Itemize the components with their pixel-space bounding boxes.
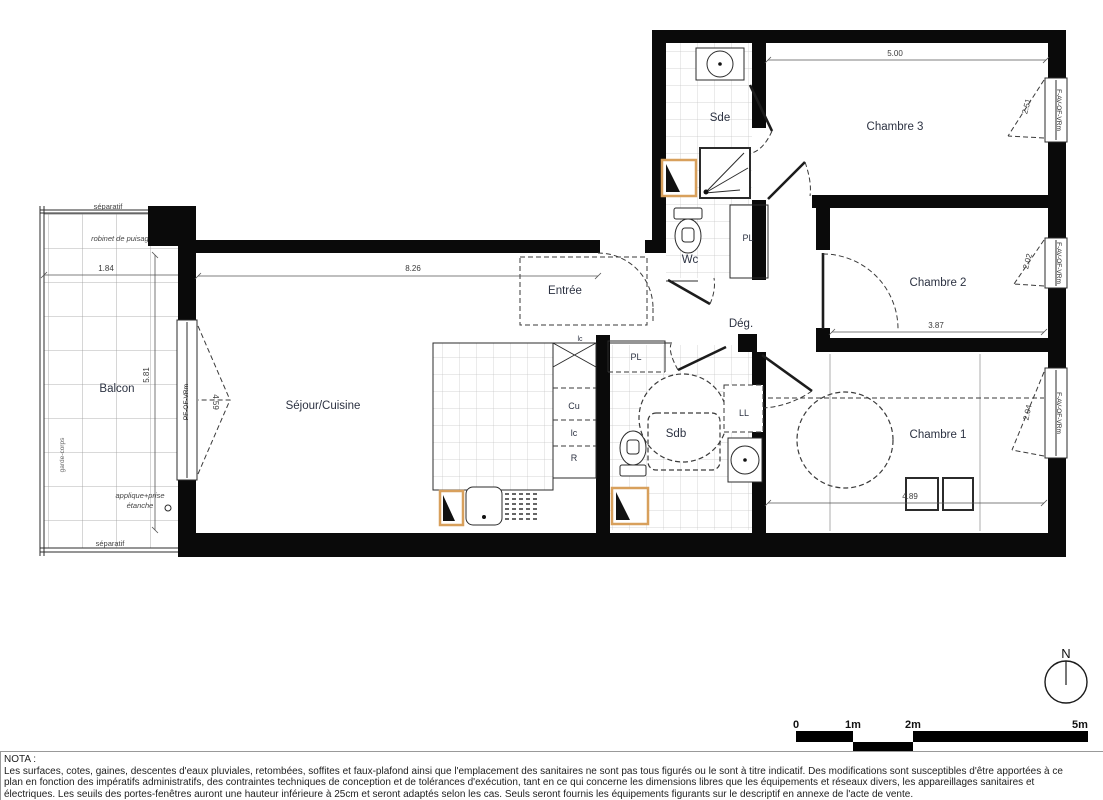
svg-text:4.59: 4.59 (211, 394, 220, 410)
washing-machine-box: LL (724, 385, 763, 432)
separatif-top-label: séparatif (94, 202, 124, 211)
room-chambre3: Chambre 3 5.00 (765, 49, 1049, 133)
window-chambre2: F-AV-OF-VRm 2.02 (1014, 238, 1067, 288)
room-label-sdb: Sdb (666, 428, 686, 440)
bed-circle (797, 392, 893, 488)
appliance-label-lc: lc (571, 428, 578, 438)
washbasin-icon-sdb (728, 438, 762, 482)
room-label-balcon: Balcon (99, 383, 134, 395)
scale-label-0: 0 (793, 719, 799, 731)
svg-text:5.00: 5.00 (887, 49, 903, 58)
dim-chambre2-width: 3.87 (829, 321, 1047, 335)
room-label-sejour: Séjour/Cuisine (286, 400, 361, 412)
room-chambre2: Chambre 2 3.87 (829, 277, 1047, 335)
svg-text:4.89: 4.89 (902, 492, 918, 501)
scale-label-5m: 5m (1072, 719, 1088, 731)
nota-block: NOTA : Les surfaces, cotes, gaines, desc… (0, 751, 1103, 800)
svg-text:2.02: 2.02 (1021, 252, 1034, 270)
room-label-entree: Entrée (548, 285, 582, 297)
room-label-chambre1: Chambre 1 (910, 429, 967, 441)
entree-zone: Entrée (520, 253, 653, 325)
front-door-swing (598, 253, 653, 324)
room-chambre1: Chambre 1 4.89 (765, 354, 1047, 531)
svg-text:8.26: 8.26 (405, 264, 421, 273)
applique-label-1: applique+prise (116, 491, 165, 500)
room-label-chambre3: Chambre 3 (867, 121, 924, 133)
window-label-sejour: PF-OF-VRm (183, 384, 190, 420)
dim-sejour-width: 8.26 (195, 264, 601, 279)
room-label-wc: Wc (682, 254, 699, 266)
window-label-chambre1: F-AV-OF-VRm (1055, 392, 1062, 434)
kitchen-appliance-column: lc Cu lc R (553, 336, 596, 478)
garde-corps-label: garde-corps (59, 437, 66, 472)
floor-plan: séparatif robinet de puisage 1.84 Balcon… (0, 0, 1103, 751)
scale-bar: 0 1m 2m 5m (793, 719, 1088, 751)
window-chambre1: F-AV-OF-VRm 2.04 (1012, 368, 1067, 458)
nota-line-2: plan en fonction des impératifs administ… (4, 777, 1103, 789)
appliance-label-r: R (571, 453, 578, 463)
balcony-door-highlight-sejour (440, 491, 463, 525)
door-leaf-wc (668, 280, 710, 304)
kitchen-sink-icon (466, 487, 502, 525)
scale-label-2m: 2m (905, 719, 921, 731)
room-label-chambre2: Chambre 2 (910, 277, 967, 289)
scale-label-1m: 1m (845, 719, 861, 731)
window-label-chambre3: F-AV-OF-VRm (1055, 89, 1062, 131)
washbasin-icon (696, 48, 744, 80)
nota-line-1: Les surfaces, cotes, gaines, descentes d… (4, 766, 1103, 778)
north-compass-icon: N (1045, 646, 1087, 703)
closet-label-hall: PL (742, 233, 753, 243)
svg-text:3.87: 3.87 (928, 321, 944, 330)
balcony: séparatif robinet de puisage 1.84 Balcon… (40, 202, 186, 556)
svg-text:1.84: 1.84 (98, 264, 114, 273)
nightstand (943, 478, 973, 510)
closet-label-sejour: PL (630, 352, 641, 362)
svg-text:5.81: 5.81 (142, 367, 151, 383)
duct-highlight-sde (662, 160, 696, 196)
kitchen-floor (433, 343, 553, 490)
north-label: N (1061, 646, 1070, 661)
room-label-sde: Sde (710, 112, 730, 124)
svg-text:2.51: 2.51 (1020, 97, 1033, 115)
window-label-chambre2: F-AV-OF-VRm (1055, 242, 1062, 284)
window-sejour: PF-OF-VRm 4.59 (177, 320, 230, 480)
door-leaf-chambre1 (762, 355, 812, 391)
appliance-label-lc-top: lc (577, 336, 583, 343)
svg-text:2.04: 2.04 (1022, 403, 1034, 421)
shower-tray-icon (700, 148, 750, 198)
nota-line-3: électriques. Les seuils des portes-fenêt… (4, 789, 1103, 800)
toilet-icon-sdb (620, 431, 646, 476)
duct-highlight-sdb (612, 488, 648, 524)
dish-drainer-icon (505, 494, 537, 519)
robinet-label: robinet de puisage (91, 234, 153, 243)
room-label-deg: Dég. (729, 318, 753, 330)
applique-label-2: étanche (127, 501, 154, 510)
window-chambre3: F-AV-OF-VRm 2.51 (1008, 78, 1067, 142)
appliance-label-cu: Cu (568, 401, 580, 411)
door-leaf-chambre3 (768, 162, 805, 199)
appliance-label-ll: LL (739, 408, 749, 418)
toilet-icon-wc (674, 208, 702, 253)
bathtub-circle (639, 374, 727, 462)
separatif-bottom-label: séparatif (96, 539, 126, 548)
nota-title: NOTA : (4, 754, 1103, 766)
dim-chambre3-width: 5.00 (765, 49, 1049, 63)
